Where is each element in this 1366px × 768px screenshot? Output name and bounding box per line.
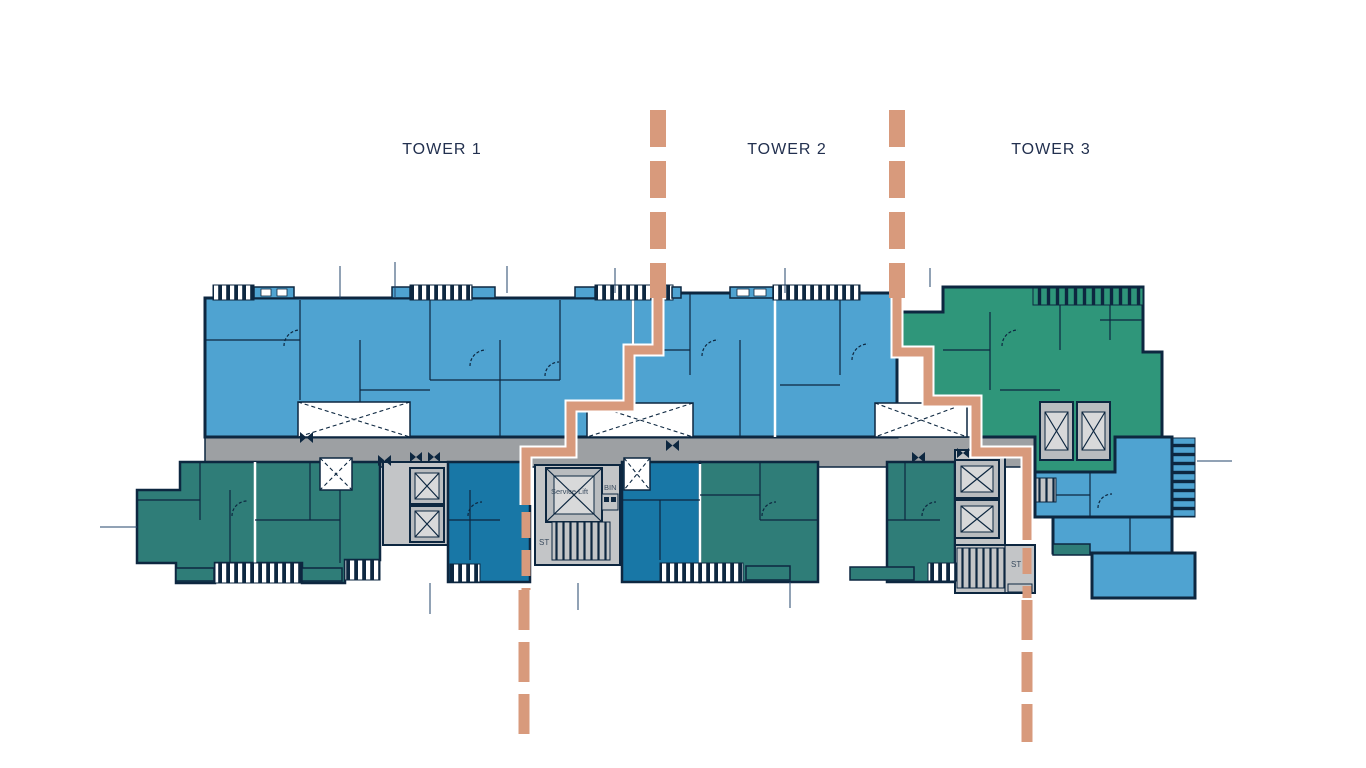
- elevator-core1: [410, 468, 444, 542]
- bin-store: [602, 494, 618, 510]
- tower2-label: TOWER 2: [697, 141, 877, 159]
- stair-label-core2: ST: [539, 538, 549, 547]
- tower3-label: TOWER 3: [961, 141, 1141, 159]
- elevator-core2-tower2: [955, 460, 999, 538]
- stair-label-core3: ST: [1011, 560, 1021, 569]
- service-lift-label: Service Lift: [551, 487, 589, 496]
- bin-label: BIN: [604, 483, 617, 492]
- tower3-lower-unit-bottom: [1092, 553, 1195, 598]
- slide-canvas: TOWER 1 TOWER 2 TOWER 3: [0, 0, 1366, 768]
- floor-plan-svg: Service Lift BIN ST ST 2: [0, 0, 1366, 768]
- tower1-label: TOWER 1: [352, 141, 532, 159]
